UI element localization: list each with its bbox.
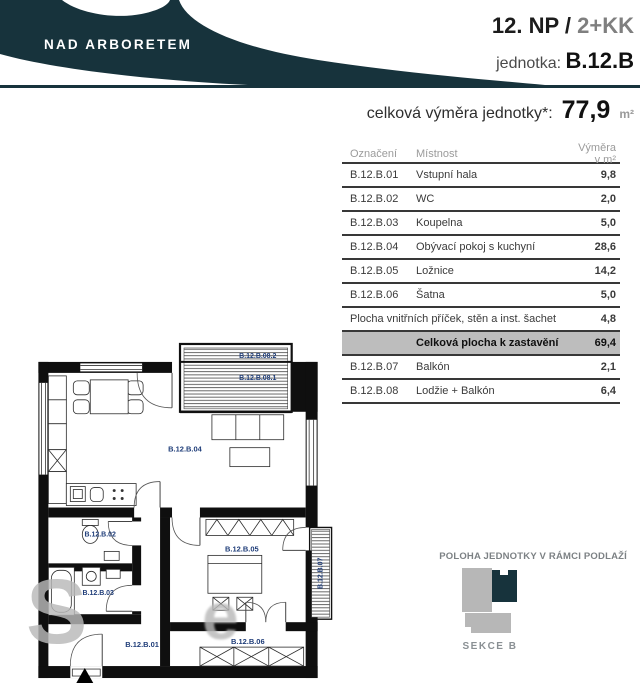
total-row-label: Celková plocha k zastavění — [342, 337, 570, 349]
kitchen-cabinet — [48, 376, 66, 400]
row-room: Obývací pokoj s kuchyní — [416, 241, 570, 253]
room-label-living: B.12.B.04 — [168, 445, 202, 454]
unit-sheet-page: { "header": { "brand": "NAD ARBORETEM", … — [0, 0, 640, 687]
partition-label: Plocha vnitřních příček, stěn a inst. ša… — [342, 313, 570, 325]
row-code: B.12.B.04 — [342, 241, 416, 253]
hob-burner — [113, 489, 116, 492]
unit-line: jednotka: B.12.B — [492, 48, 634, 74]
hob-burner — [121, 489, 124, 492]
floor-number: 12. NP / — [492, 13, 571, 38]
unit-code: B.12.B — [566, 48, 634, 73]
room-label-loggia: B.12.B.08.1 — [239, 375, 276, 382]
row-area: 2,1 — [570, 361, 620, 373]
row-area: 9,8 — [570, 169, 620, 181]
kitchen-cabinet — [48, 400, 66, 424]
floor-and-layout: 12. NP / 2+KK — [492, 13, 634, 39]
kitchen-cabinet — [48, 424, 66, 450]
table-header-row: Označení Místnost Výměra v m² — [342, 145, 620, 162]
building-notch — [465, 627, 471, 633]
row-area: 6,4 — [570, 385, 620, 397]
hob-burner — [113, 497, 116, 500]
toilet-tank — [82, 519, 98, 525]
row-code: B.12.B.02 — [342, 193, 416, 205]
section-label: SEKCE B — [450, 641, 530, 652]
row-code: B.12.B.05 — [342, 265, 416, 277]
room-label-bath: B.12.B.03 — [83, 590, 115, 597]
layout-type: 2+KK — [577, 13, 634, 38]
balcony-area: B.12.B.07 — [310, 527, 332, 619]
row-room: Ložnice — [416, 265, 570, 277]
sofa — [212, 415, 284, 440]
location-title: POLOHA JEDNOTKY V RÁMCI PODLAŽÍ — [439, 551, 627, 562]
total-area-value: 77,9 — [562, 96, 611, 125]
col-header-code: Označení — [342, 148, 416, 160]
chair — [127, 400, 143, 414]
row-area: 5,0 — [570, 289, 620, 301]
row-code: B.12.B.03 — [342, 217, 416, 229]
chair — [73, 400, 89, 414]
table-bottom-line — [342, 402, 620, 404]
table-row: B.12.B.05 Ložnice 14,2 — [342, 258, 620, 282]
partition-area-row: Plocha vnitřních příček, stěn a inst. ša… — [342, 306, 620, 330]
row-room: WC — [416, 193, 570, 205]
chair — [127, 381, 143, 395]
row-room: Lodžie + Balkón — [416, 385, 570, 397]
chair — [73, 381, 89, 395]
room-label-loggia-outer: B.12.B.08.2 — [239, 353, 276, 360]
dining-table — [90, 380, 128, 414]
brand-logo: NAD ARBORETEM — [0, 0, 560, 92]
row-room: Vstupní hala — [416, 169, 570, 181]
total-area-line: celková výměra jednotky*: 77,9 m² — [367, 96, 634, 125]
room-label-closet: B.12.B.06 — [231, 637, 265, 646]
table-row: B.12.B.02 WC 2,0 — [342, 186, 620, 210]
row-area: 14,2 — [570, 265, 620, 277]
bed — [208, 555, 262, 593]
table-row: B.12.B.03 Koupelna 5,0 — [342, 210, 620, 234]
table-row: B.12.B.04 Obývací pokoj s kuchyní 28,6 — [342, 234, 620, 258]
kitchen-cabinet — [48, 472, 66, 504]
hob-burner — [121, 497, 124, 500]
row-code: B.12.B.08 — [342, 385, 416, 397]
wall-openings — [70, 521, 142, 678]
table-row: B.12.B.06 Šatna 5,0 — [342, 282, 620, 306]
room-label-balcony: B.12.B.07 — [318, 558, 325, 590]
floor-location-map — [455, 566, 525, 636]
floorplan: B.12.B.08.2 B.12.B.08.1 — [24, 336, 340, 687]
row-area: 2,0 — [570, 193, 620, 205]
row-room: Šatna — [416, 289, 570, 301]
row-room: Koupelna — [416, 217, 570, 229]
room-label-wc: B.12.B.02 — [85, 531, 117, 538]
bath-basin — [106, 569, 120, 578]
row-area: 28,6 — [570, 241, 620, 253]
room-area-table: Označení Místnost Výměra v m² B.12.B.01 … — [342, 145, 620, 404]
col-header-area: Výměra v m² — [570, 142, 620, 166]
col-header-room: Místnost — [416, 148, 570, 160]
row-code: B.12.B.01 — [342, 169, 416, 181]
partition-area: 4,8 — [570, 313, 620, 325]
unit-label: jednotka: — [496, 55, 561, 72]
table-row: B.12.B.08 Lodžie + Balkón 6,4 — [342, 378, 620, 402]
coffee-table — [230, 448, 270, 467]
total-row-area: 69,4 — [570, 337, 620, 349]
brand-name: NAD ARBORETEM — [44, 37, 192, 52]
row-area: 5,0 — [570, 217, 620, 229]
unit-notch — [500, 570, 508, 575]
building-outline-shape — [465, 613, 511, 633]
row-code: B.12.B.07 — [342, 361, 416, 373]
washing-machine — [82, 567, 100, 585]
room-label-bedroom: B.12.B.05 — [225, 544, 259, 553]
bedroom-wardrobe — [206, 519, 294, 535]
row-code: B.12.B.06 — [342, 289, 416, 301]
total-area-label: celková výměra jednotky*: — [367, 105, 553, 123]
building-outline-shape — [462, 568, 492, 612]
table-row: B.12.B.01 Vstupní hala 9,8 — [342, 162, 620, 186]
room-label-hall: B.12.B.01 — [125, 640, 159, 649]
loggia-area: B.12.B.08.2 B.12.B.08.1 — [180, 344, 292, 412]
total-built-area-row: Celková plocha k zastavění 69,4 — [342, 330, 620, 354]
unit-header: 12. NP / 2+KK jednotka: B.12.B — [492, 13, 634, 74]
row-room: Balkón — [416, 361, 570, 373]
total-area-unit: m² — [619, 107, 634, 121]
wc-basin — [104, 551, 119, 560]
table-row: B.12.B.07 Balkón 2,1 — [342, 354, 620, 378]
